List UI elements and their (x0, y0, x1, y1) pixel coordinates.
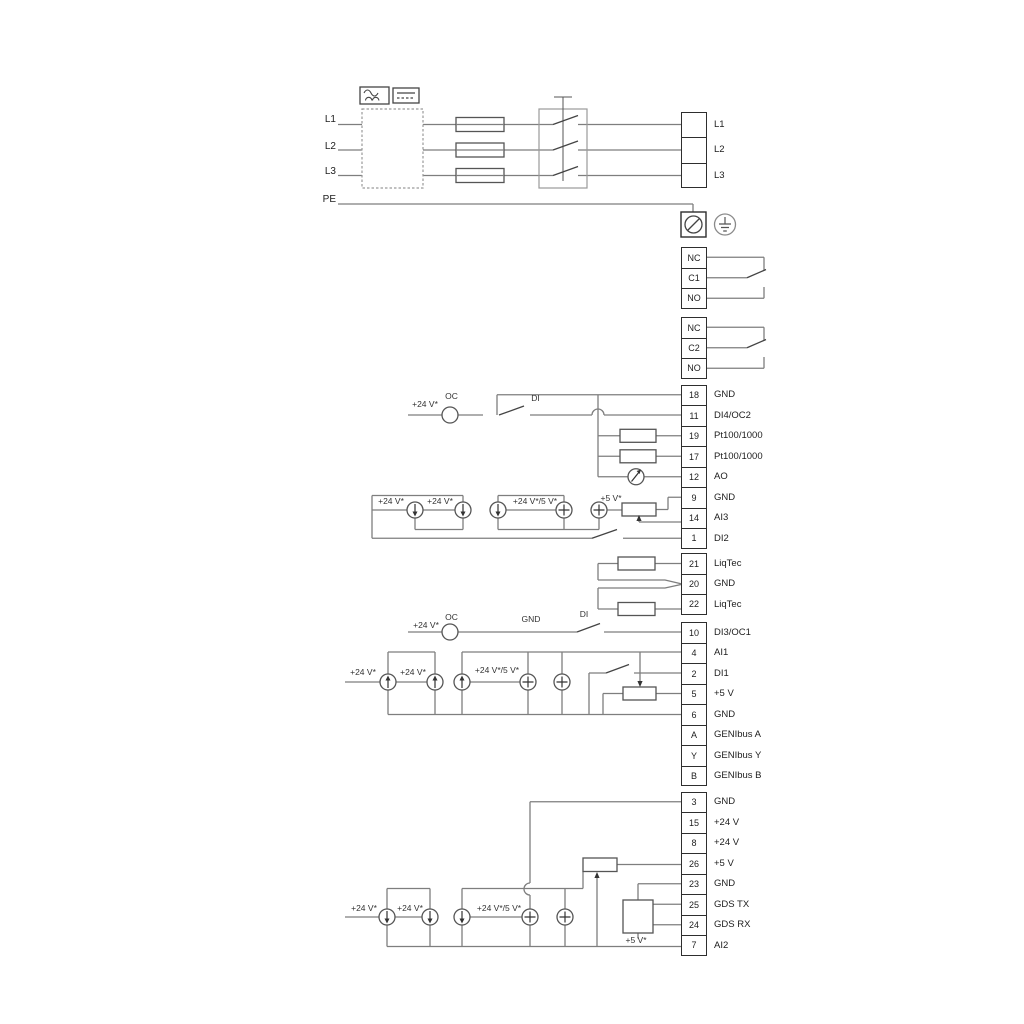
terminal-row: 2 DI1 (681, 663, 762, 684)
terminal-label: +5 V (714, 688, 734, 699)
terminal-cell: 26 (681, 853, 707, 874)
terminal-row: Y GENIbus Y (681, 745, 762, 766)
terminal-label: DI4/OC2 (714, 410, 751, 421)
wiring-diagram: L1 L2 L3 PE +24 V* OC DI +24 V* +24 V* +… (0, 0, 1024, 1024)
terminal-group-io2: 10 DI3/OC1 4 AI1 2 DI1 5 +5 V 6 GND A GE… (681, 622, 762, 786)
supply-label: +5 V* (625, 935, 646, 945)
terminal-row: NO (681, 358, 714, 379)
terminal-cell: NC (681, 247, 707, 268)
oc-label: OC (445, 391, 458, 401)
terminal-row: 15 +24 V (681, 812, 750, 833)
terminal-cell: A (681, 725, 707, 746)
open-collector-icon (442, 407, 458, 423)
terminal-label: GDS RX (714, 919, 750, 930)
terminal-label: DI1 (714, 668, 729, 679)
supply-label: +24 V*/5 V* (475, 665, 519, 675)
terminal-label: +24 V (714, 837, 739, 848)
terminal-label: LiqTec (714, 599, 741, 610)
di2-switch (592, 530, 617, 539)
terminal-row: 23 GND (681, 874, 750, 895)
terminal-cell: 15 (681, 812, 707, 833)
terminal-label: GENIbus B (714, 770, 762, 781)
terminal-cell: C2 (681, 338, 707, 359)
terminal-row: 6 GND (681, 704, 762, 725)
gnd-label: GND (522, 614, 541, 624)
terminal-label: GND (714, 492, 735, 503)
terminal-label: Pt100/1000 (714, 430, 763, 441)
terminal-cell: 6 (681, 704, 707, 725)
supply-label: +24 V* (412, 399, 438, 409)
terminal-group-liqtec: 21 LiqTec 20 GND 22 LiqTec (681, 553, 741, 615)
terminal-cell: B (681, 766, 707, 787)
terminal-label: L1 (714, 119, 725, 130)
di-label: DI (580, 609, 589, 619)
terminal-cell: NO (681, 358, 707, 379)
terminal-row: C1 (681, 268, 714, 289)
terminal-row: 12 AO (681, 467, 763, 488)
liqtec-resistor-22 (618, 603, 655, 616)
terminal-cell: 9 (681, 487, 707, 508)
terminal-label: GND (714, 878, 735, 889)
liqtec-resistor-21 (618, 557, 655, 570)
terminal-label: DI3/OC1 (714, 627, 751, 638)
terminal-cell (681, 137, 707, 162)
terminal-label: AI3 (714, 512, 728, 523)
pt100-resistor-17 (620, 450, 656, 463)
supply-label: +24 V*/5 V* (477, 903, 521, 913)
terminal-row: A GENIbus A (681, 725, 762, 746)
terminal-cell: 25 (681, 894, 707, 915)
terminal-cell: Y (681, 745, 707, 766)
terminal-row: 17 Pt100/1000 (681, 446, 763, 467)
terminal-row: 11 DI4/OC2 (681, 405, 763, 426)
terminal-cell: 18 (681, 385, 707, 406)
terminal-cell: 2 (681, 663, 707, 684)
potentiometer-ai3 (622, 503, 656, 516)
terminal-row: B GENIbus B (681, 766, 762, 787)
terminal-row: 1 DI2 (681, 528, 763, 549)
terminal-label: GENIbus A (714, 729, 761, 740)
terminal-label: GND (714, 389, 735, 400)
supply-label: +24 V* (350, 667, 376, 677)
terminal-label: Pt100/1000 (714, 451, 763, 462)
terminal-cell: 3 (681, 792, 707, 813)
terminal-label: AO (714, 471, 728, 482)
terminal-row: 20 GND (681, 574, 741, 595)
terminal-cell: 12 (681, 467, 707, 488)
potentiometer-ai1 (623, 687, 656, 700)
terminal-label: AI1 (714, 647, 728, 658)
terminal-cell: 1 (681, 528, 707, 549)
terminal-cell: 11 (681, 405, 707, 426)
main-switch-contacts (553, 116, 578, 176)
terminal-label: GDS TX (714, 899, 749, 910)
terminal-cell: 23 (681, 874, 707, 895)
terminal-cell: 7 (681, 935, 707, 956)
terminal-group-io1: 18 GND 11 DI4/OC2 19 Pt100/1000 17 Pt100… (681, 385, 763, 549)
terminal-label: +24 V (714, 817, 739, 828)
di3-switch (577, 624, 600, 633)
pot-wiper-arrow-ai1 (637, 681, 642, 687)
terminal-row: 7 AI2 (681, 935, 750, 956)
supply-label: +24 V* (351, 903, 377, 913)
terminal-row: 5 +5 V (681, 684, 762, 705)
power-label-l2: L2 (306, 141, 336, 152)
terminal-label: L2 (714, 144, 725, 155)
terminal-label: +5 V (714, 858, 734, 869)
terminal-label: AI2 (714, 940, 728, 951)
terminal-label: GND (714, 578, 735, 589)
terminal-group-relay1: NC C1 NO (681, 247, 714, 309)
di1-switch (606, 665, 629, 674)
gds-sensor-box (623, 900, 653, 933)
oc-label: OC (445, 612, 458, 622)
potentiometer-5v (583, 858, 617, 872)
rfi-filter-box (362, 109, 423, 188)
terminal-cell: C1 (681, 268, 707, 289)
terminal-cell: 10 (681, 622, 707, 643)
supply-label: +24 V*/5 V* (513, 496, 557, 506)
terminal-group-io3: 3 GND 15 +24 V 8 +24 V 26 +5 V 23 GND 25… (681, 792, 750, 956)
supply-label: +24 V* (413, 620, 439, 630)
diagram-graphics (0, 0, 1024, 1024)
terminal-row: 25 GDS TX (681, 894, 750, 915)
terminal-cell: NC (681, 317, 707, 338)
relay-contact-arms (747, 270, 766, 348)
power-label-pe: PE (306, 194, 336, 205)
terminal-row: 24 GDS RX (681, 915, 750, 936)
terminal-row: 21 LiqTec (681, 553, 741, 574)
terminal-row: 4 AI1 (681, 643, 762, 664)
terminal-label: GENIbus Y (714, 750, 761, 761)
terminal-cell (681, 112, 707, 137)
terminal-row: 18 GND (681, 385, 763, 406)
di-label: DI (531, 393, 540, 403)
terminal-cell: 24 (681, 915, 707, 936)
terminal-cell: 5 (681, 684, 707, 705)
supply-label: +5 V* (600, 493, 621, 503)
terminal-label: GND (714, 709, 735, 720)
terminal-label: DI2 (714, 533, 729, 544)
supply-label: +24 V* (397, 903, 423, 913)
terminal-cell: 19 (681, 426, 707, 447)
terminal-cell: 20 (681, 574, 707, 595)
terminal-label: GND (714, 796, 735, 807)
dc-symbol-box (393, 88, 419, 103)
terminal-label: LiqTec (714, 558, 741, 569)
terminal-row: L2 (681, 137, 725, 162)
power-label-l3: L3 (306, 166, 336, 177)
terminal-row: C2 (681, 338, 714, 359)
terminal-row: L1 (681, 112, 725, 137)
di4-switch (499, 406, 524, 415)
terminal-row: 10 DI3/OC1 (681, 622, 762, 643)
pot-wiper-arrow-ai2 (594, 872, 599, 878)
terminal-cell (681, 163, 707, 188)
terminal-row: NO (681, 288, 714, 309)
terminal-row: 26 +5 V (681, 853, 750, 874)
power-label-l1: L1 (306, 114, 336, 125)
terminal-row: 19 Pt100/1000 (681, 426, 763, 447)
open-collector-icon-2 (442, 624, 458, 640)
terminal-row: 22 LiqTec (681, 594, 741, 615)
terminal-cell: 21 (681, 553, 707, 574)
supply-label: +24 V* (427, 496, 453, 506)
terminal-row: 9 GND (681, 487, 763, 508)
pt100-resistor-19 (620, 429, 656, 442)
terminal-cell: 17 (681, 446, 707, 467)
supply-label: +24 V* (378, 496, 404, 506)
terminal-row: NC (681, 317, 714, 338)
terminal-label: L3 (714, 170, 725, 181)
terminal-row: 8 +24 V (681, 833, 750, 854)
terminal-row: NC (681, 247, 714, 268)
terminal-row: 3 GND (681, 792, 750, 813)
terminal-cell: 14 (681, 508, 707, 529)
terminal-cell: 8 (681, 833, 707, 854)
terminal-cell: 4 (681, 643, 707, 664)
terminal-row: 14 AI3 (681, 508, 763, 529)
terminal-row: L3 (681, 163, 725, 188)
supply-label: +24 V* (400, 667, 426, 677)
terminal-group-relay2: NC C2 NO (681, 317, 714, 379)
terminal-cell: 22 (681, 594, 707, 615)
terminal-cell: NO (681, 288, 707, 309)
terminal-group-mains: L1 L2 L3 (681, 112, 725, 188)
